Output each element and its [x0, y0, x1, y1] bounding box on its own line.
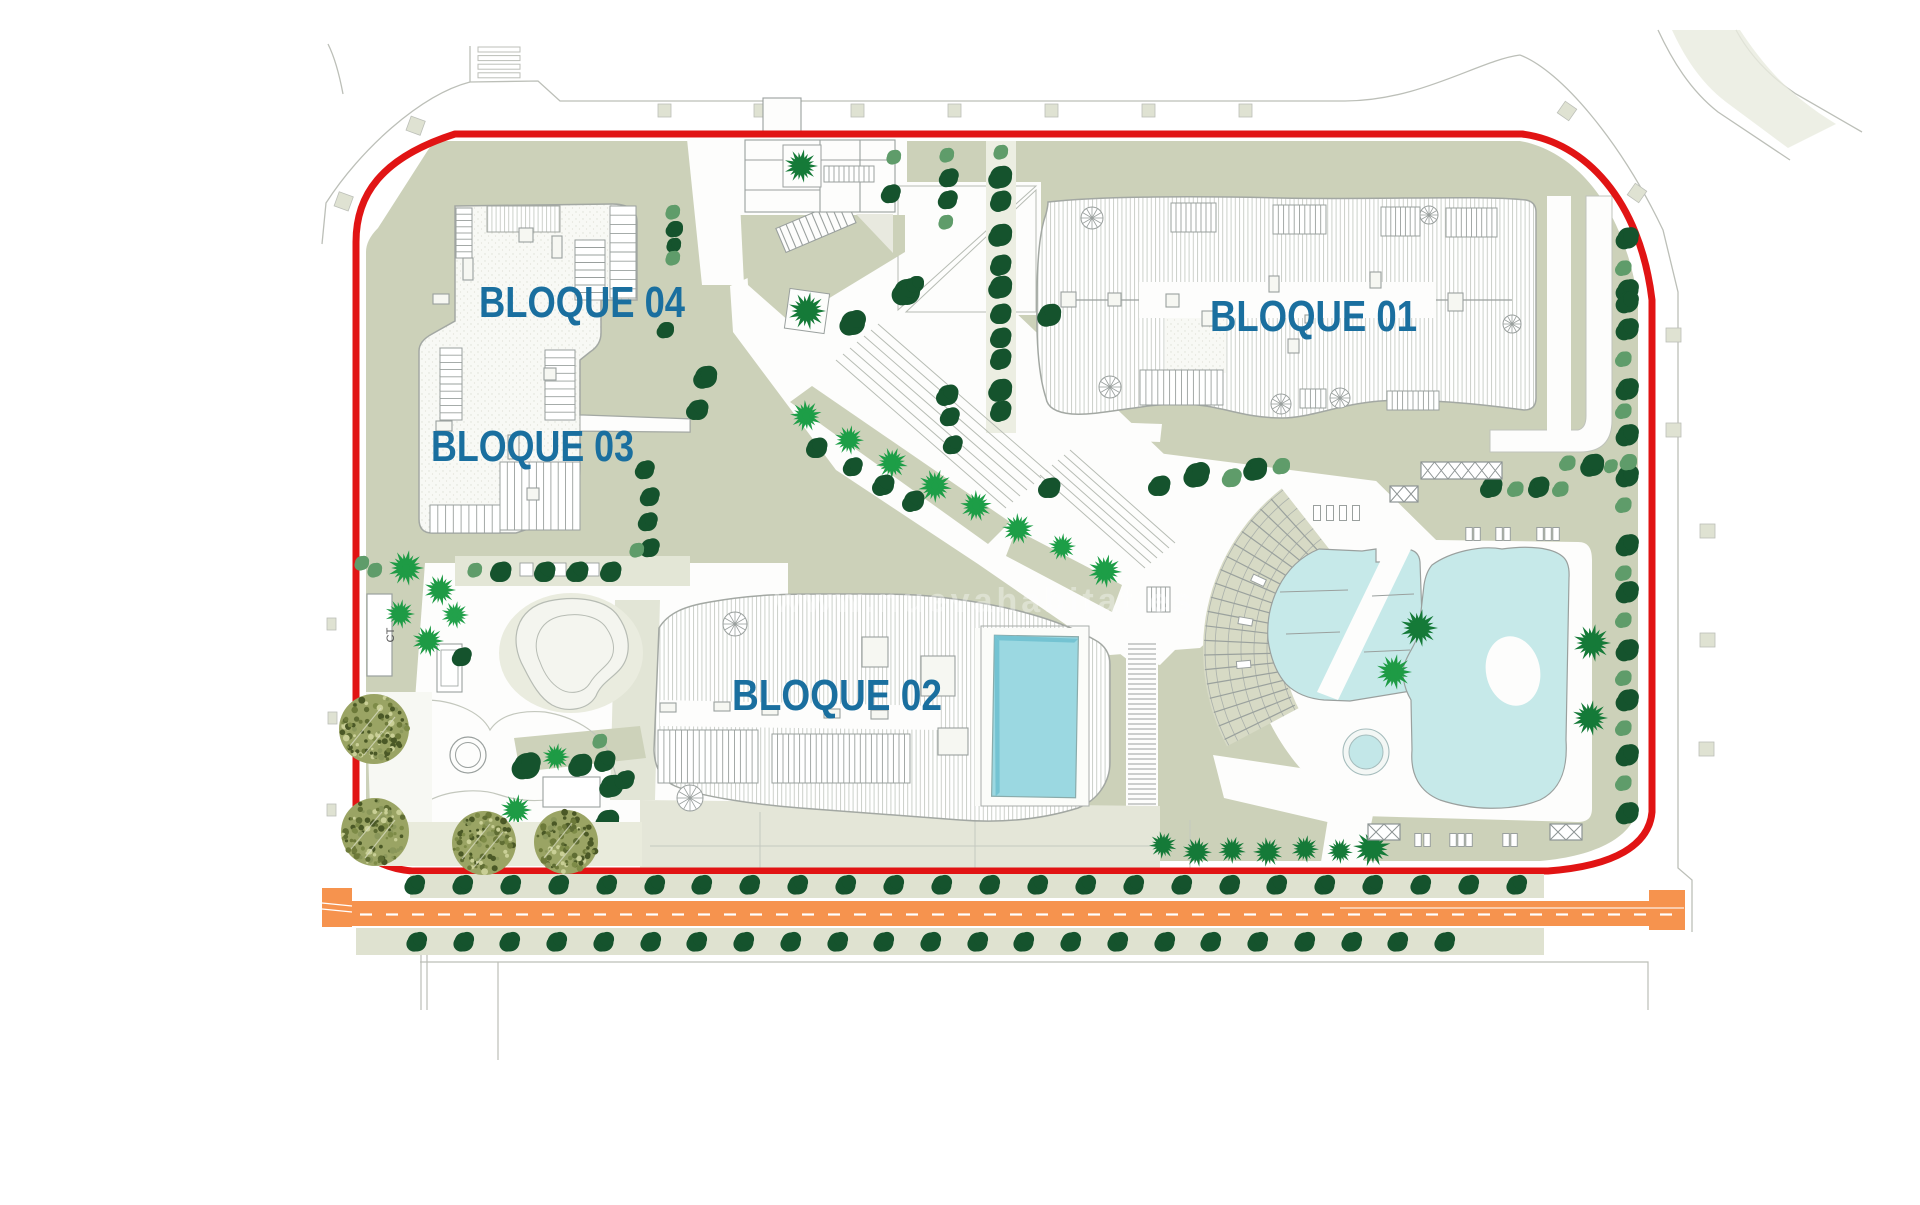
svg-text:BLOQUE 01: BLOQUE 01: [1210, 292, 1417, 341]
svg-text:BLOQUE 02: BLOQUE 02: [732, 671, 942, 720]
svg-text:BLOQUE 03: BLOQUE 03: [431, 422, 634, 471]
svg-text:www.nuevahabitat.es: www.nuevahabitat.es: [774, 582, 1196, 620]
svg-text:BLOQUE 04: BLOQUE 04: [479, 278, 685, 327]
svg-text:CT: CT: [385, 627, 397, 642]
